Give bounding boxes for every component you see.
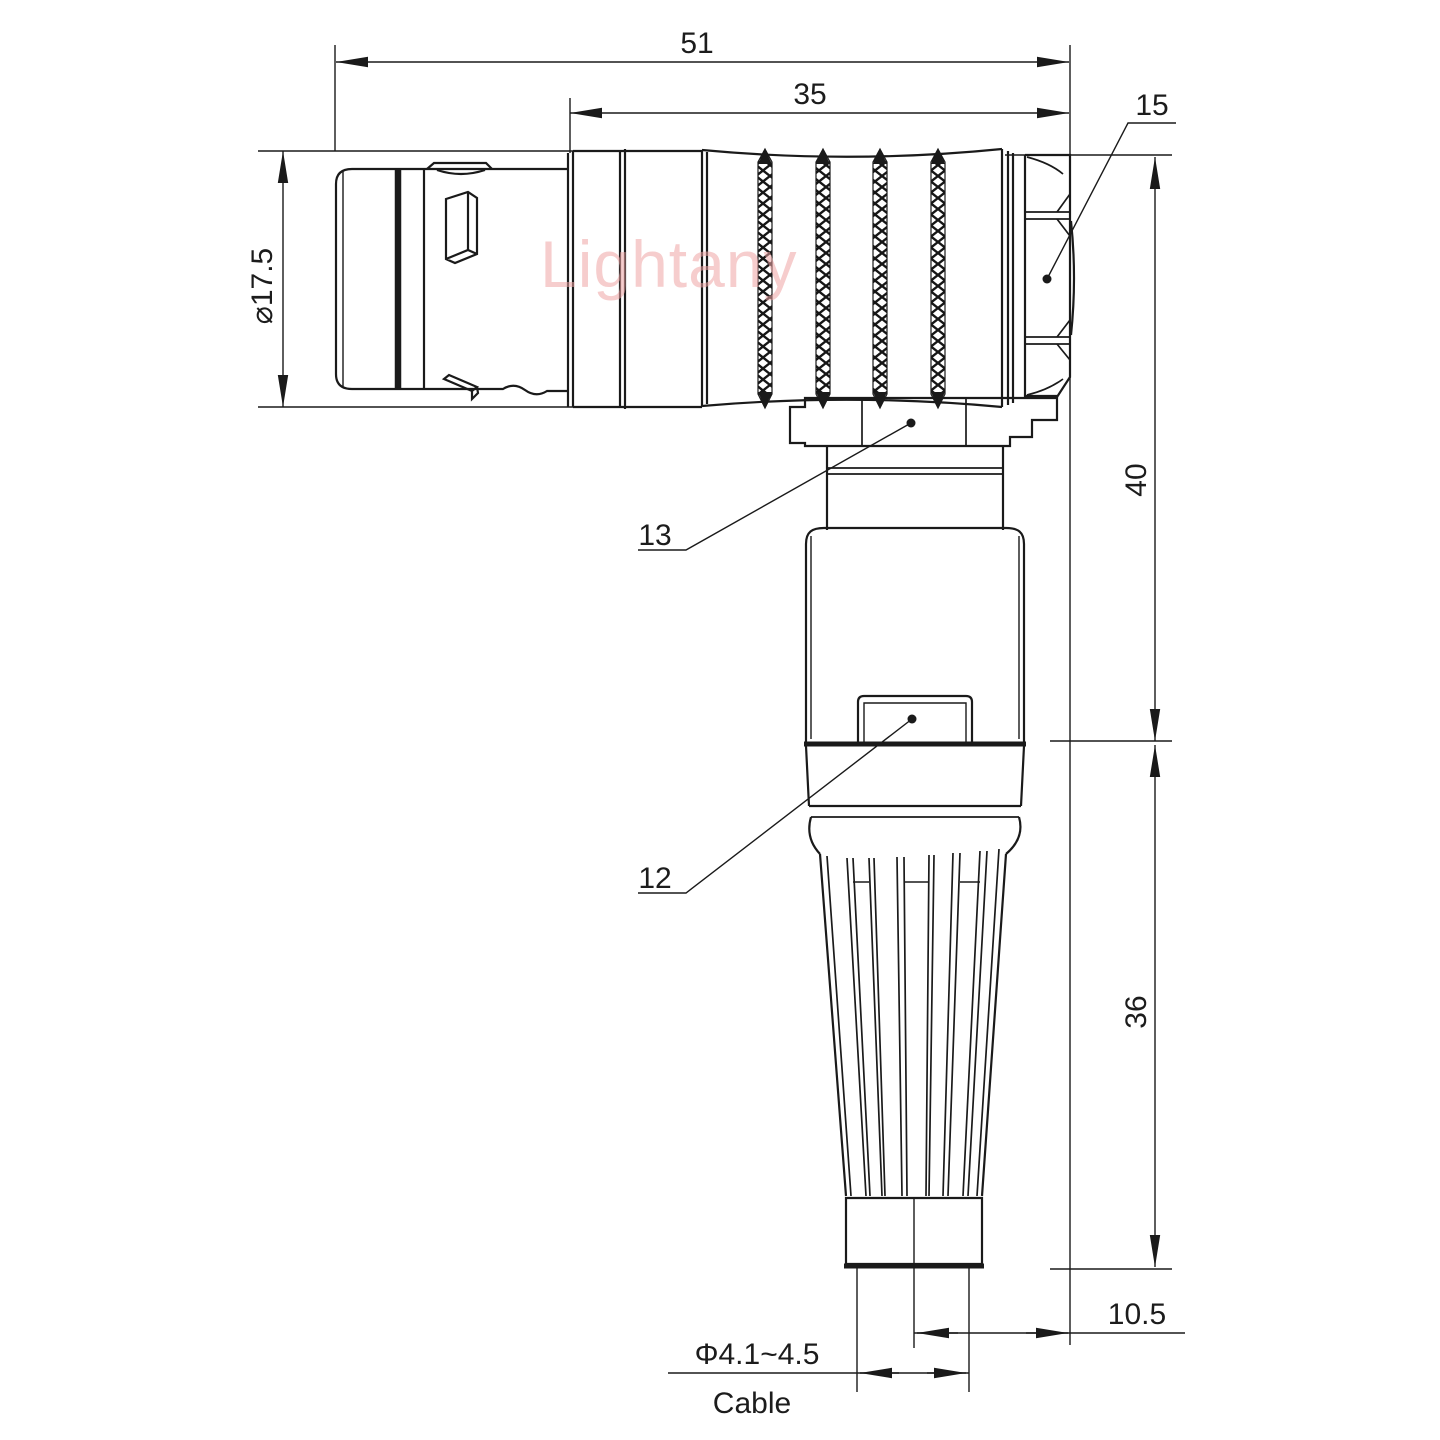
strain-relief-fins — [827, 849, 999, 1196]
leader-13-line — [638, 423, 911, 550]
bell-flare — [806, 746, 1024, 854]
main-body-inner-edges — [811, 536, 1019, 739]
shell-step-edges — [568, 149, 625, 409]
knurl-band-tips — [758, 149, 945, 408]
collar — [790, 398, 1057, 446]
dim-40-text: 40 — [1120, 463, 1153, 496]
strain-relief — [820, 849, 1006, 1196]
knurl-band — [873, 149, 887, 408]
cable-bushing — [844, 1198, 984, 1266]
side-view-assembly: Lightany — [336, 149, 1074, 409]
neck-groove — [827, 468, 1003, 474]
front-plug-bottom-tab — [444, 375, 478, 399]
latch-window-inner — [864, 703, 966, 743]
connector-drawing: Lightany — [0, 0, 1440, 1440]
dim-12-text: 12 — [638, 862, 671, 895]
shell-top-bottom-edges — [573, 151, 702, 407]
knurl-band — [931, 149, 945, 408]
dim-35-text: 35 — [793, 78, 826, 111]
leader-15-dot — [1043, 275, 1052, 284]
vertical-assembly — [790, 398, 1057, 1392]
cable-label-text: Cable — [713, 1387, 791, 1420]
knurl-band — [758, 149, 772, 408]
leader-13-dot — [907, 419, 916, 428]
main-body-outline — [806, 528, 1024, 743]
leader-12-dot — [908, 715, 917, 724]
dim-10-5-text: 10.5 — [1108, 1298, 1166, 1331]
dim-17-5-text: ⌀17.5 — [246, 248, 279, 324]
dim-36-text: 36 — [1120, 995, 1153, 1028]
collar-outline — [790, 398, 1057, 446]
front-plug-keyway — [446, 192, 477, 263]
knurl-profile — [702, 149, 1013, 407]
hex-nut-bulge-arc — [1071, 221, 1074, 335]
technical-drawing-page: Lightany — [0, 0, 1440, 1440]
front-plug-barrel — [336, 169, 568, 394]
leader-15-line — [1047, 123, 1176, 279]
knurl-band — [816, 149, 830, 408]
dim-cable-diameter-text: Φ4.1~4.5 — [695, 1338, 820, 1371]
dim-15-text: 15 — [1135, 89, 1168, 122]
dim-13-text: 13 — [638, 519, 671, 552]
knurl-bands — [758, 149, 945, 408]
neck — [827, 446, 1003, 530]
dimension-annotations: 51 35 15 ⌀17.5 40 36 13 12 10.5 — [246, 27, 1185, 1420]
dim-51-text: 51 — [680, 27, 713, 60]
brand-engraving-text: Lightany — [652, 150, 671, 221]
